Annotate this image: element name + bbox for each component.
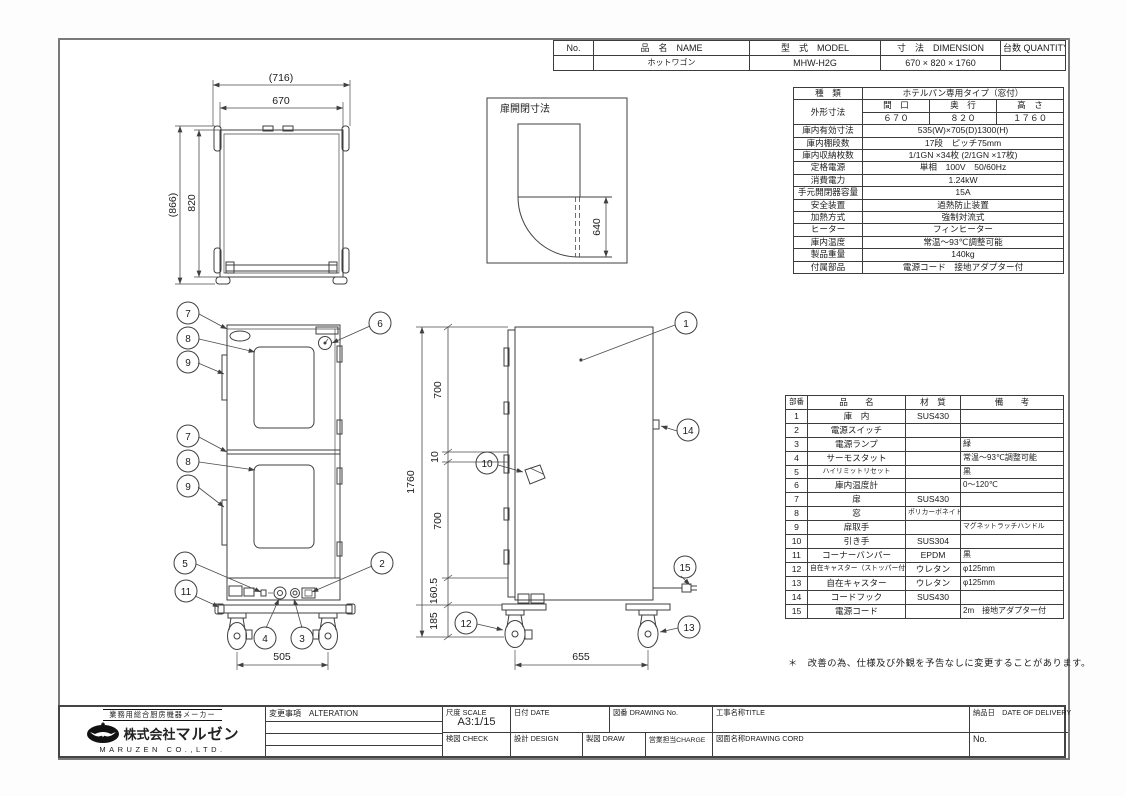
side-view: 1760 700 10 700 160.5 185 655 1 14 10 15… (400, 300, 710, 685)
power-lamp (291, 589, 300, 598)
thermometer-icon (319, 337, 332, 350)
company-name-en: MARUZEN CO.,LTD. (99, 745, 225, 754)
door-window-upper (254, 347, 314, 428)
dim-upper-door: 700 (432, 381, 444, 399)
callout-9: 9 (177, 475, 199, 497)
dim-base-height: 160.5 (428, 578, 440, 604)
table-row: 11コーナーバンパーEPDM黒 (786, 548, 1064, 562)
door-opening-detail: 扉開閉寸法 640 (460, 80, 660, 290)
callout-2: 2 (371, 552, 393, 574)
table-row: 12自在キャスター（ストッパー付）ウレタンφ125mm (786, 562, 1064, 576)
spec-value: ホテルパン専用タイプ（窓付） (863, 88, 1064, 100)
header-col-quantity: 台数 QUANTITY (1001, 41, 1066, 56)
disclaimer-note: ＊ 改善の為、仕様及び外観を予告なしに変更することがあります。 (788, 655, 1091, 669)
surface-point (579, 358, 582, 361)
spec-label: 庫内温度 (794, 236, 863, 248)
caster-icon (505, 610, 532, 648)
caster-icon (638, 610, 658, 648)
callout-4: 4 (254, 627, 276, 649)
svg-text:3: 3 (299, 634, 305, 645)
dim-outer-depth: (866) (167, 193, 179, 218)
spec-label: 安全装置 (794, 199, 863, 211)
spec-value: 1.24kW (863, 174, 1064, 186)
quantity-value (1001, 56, 1066, 71)
table-row: 6庫内温度計0～120℃ (786, 479, 1064, 493)
parts-col-remarks: 備 考 (961, 396, 1064, 410)
header-col-model: 型 式 MODEL (750, 41, 881, 56)
table-row: 2電源スイッチ (786, 423, 1064, 437)
maruzen-logo-icon (85, 722, 121, 744)
date-cell: 日付 DATE (510, 707, 609, 733)
table-row: 10引き手SUS304 (786, 535, 1064, 549)
svg-text:8: 8 (185, 334, 191, 345)
header-col-dimension: 寸 法 DIMENSION (881, 41, 1001, 56)
spec-label: 庫内収納枚数 (794, 150, 863, 162)
spec-sub-val: １７６０ (997, 112, 1064, 124)
spec-label: 定格電源 (794, 162, 863, 174)
front-dimensions: 505 (237, 651, 328, 670)
callout-6: 6 (369, 312, 391, 334)
spec-label: 外形寸法 (794, 100, 863, 125)
callout-7: 7 (177, 425, 199, 447)
base-flange-front (502, 604, 546, 610)
front-view: 505 7 8 9 7 8 9 5 11 6 2 4 3 (165, 300, 410, 680)
door-swing-dimension: 640 (591, 197, 606, 257)
company-name: 株式会社マルゼン (123, 723, 239, 744)
callout-3: 3 (291, 627, 313, 649)
company-block: 業務用総合厨房機器メーカー 株式会社マルゼン MARUZEN CO.,LTD. (60, 707, 265, 756)
pull-handle (525, 465, 545, 484)
project-title-cell: 工事名称TITLE (712, 707, 969, 733)
charge-cell: 営業担当CHARGE (645, 733, 712, 756)
callout-8: 8 (177, 450, 199, 472)
drawing-name-cell: 図面名称DRAWING CORD (712, 733, 969, 756)
svg-text:9: 9 (185, 482, 191, 493)
dim-caster-height: 185 (428, 612, 440, 630)
spec-label: 種 類 (794, 88, 863, 100)
spec-label: 加熱方式 (794, 212, 863, 224)
company-tagline: 業務用総合厨房機器メーカー (103, 709, 221, 721)
side-cabinet (502, 327, 697, 648)
door-window-lower (254, 465, 314, 548)
draw-cell: 製図 DRAW (582, 733, 645, 756)
title-block: 業務用総合厨房機器メーカー 株式会社マルゼン MARUZEN CO.,LTD. … (58, 705, 1066, 758)
spec-sub-col: 奥 行 (930, 100, 997, 112)
callout-7: 7 (177, 302, 199, 324)
dim-depth: 820 (186, 194, 198, 212)
callout-13: 13 (678, 616, 700, 638)
dim-door-open: 640 (591, 218, 603, 236)
callout-9: 9 (177, 351, 199, 373)
spec-value: 140kg (863, 249, 1064, 261)
check-cell: 検図 CHECK (442, 733, 510, 756)
table-row: 8窓ポリカーボネイト (786, 507, 1064, 521)
alteration-cell: 変更事項 ALTERATION (265, 707, 442, 756)
thermostat-knob (274, 587, 286, 599)
callout-14: 14 (677, 419, 699, 441)
spec-table: 種 類 ホテルパン専用タイプ（窓付） 外形寸法 間 口 奥 行 高 さ ６７０ … (793, 87, 1064, 274)
spec-label: ヒーター (794, 224, 863, 236)
power-switch (302, 588, 315, 598)
dim-caster-span-side: 655 (572, 651, 590, 663)
product-name: ホットワゴン (594, 56, 750, 71)
table-row: 13自在キャスターウレタンφ125mm (786, 576, 1064, 590)
svg-text:11: 11 (181, 587, 192, 598)
drawing-number-cell: No. (969, 733, 1068, 756)
front-callouts: 7 8 9 7 8 9 5 11 6 2 4 3 (174, 302, 393, 649)
callout-12: 12 (455, 612, 477, 634)
spec-sub-col: 高 さ (997, 100, 1064, 112)
caster-icon (313, 613, 338, 650)
callout-5: 5 (174, 552, 196, 574)
side-leader-lines (477, 325, 690, 632)
table-row: 15電源コード2m 接地アダプター付 (786, 604, 1064, 618)
header-col-no: No. (554, 41, 594, 56)
svg-text:7: 7 (185, 309, 191, 320)
dim-width: 670 (272, 95, 290, 107)
parts-col-name: 品 名 (808, 396, 906, 410)
delivery-date-cell: 納品日 DATE OF DELIVERY (969, 707, 1068, 733)
base-flange-rear (626, 604, 670, 610)
spec-value: 単相 100V 50/60Hz (863, 162, 1064, 174)
spec-sub-val: ８２０ (930, 112, 997, 124)
header-no-value (554, 56, 594, 71)
side-callouts: 1 14 10 15 12 13 (455, 312, 700, 638)
table-row: 1庫 内SUS430 (786, 409, 1064, 423)
scale-value: A3:1/15 (443, 716, 510, 728)
spec-label: 消費電力 (794, 174, 863, 186)
svg-text:2: 2 (379, 559, 385, 570)
svg-text:8: 8 (185, 457, 191, 468)
table-row: 7扉SUS430 (786, 493, 1064, 507)
table-row: 5ハイリミットリセット黒 (786, 465, 1064, 479)
header-table: No. 品 名 NAME 型 式 MODEL 寸 法 DIMENSION 台数 … (553, 40, 1066, 71)
spec-label: 付属部品 (794, 261, 863, 273)
spec-label: 手元開閉器容量 (794, 187, 863, 199)
spec-label: 製品重量 (794, 249, 863, 261)
table-row: 3電源ランプ緑 (786, 437, 1064, 451)
spec-value: 1/1GN ×34枚 (2/1GN ×17枚) (863, 150, 1064, 162)
control-panel (229, 586, 315, 599)
plan-view: (716) 670 (866) 820 (85, 70, 375, 302)
spec-value: 15A (863, 187, 1064, 199)
power-cord (653, 584, 697, 592)
scale-cell: 尺度 SCALE A3:1/15 (442, 707, 510, 733)
design-cell: 設計 DESIGN (510, 733, 582, 756)
cord-hook (653, 420, 659, 429)
svg-text:13: 13 (683, 623, 695, 634)
parts-col-material: 材 質 (906, 396, 961, 410)
door-swing-drawing (518, 124, 612, 257)
svg-text:7: 7 (185, 432, 191, 443)
spec-value: 電源コード 接地アダプター付 (863, 261, 1064, 273)
dim-lower-door: 700 (432, 512, 444, 530)
callout-15: 15 (674, 556, 696, 578)
detail-title: 扉開閉寸法 (500, 102, 550, 115)
dimension-value: 670 × 820 × 1760 (881, 56, 1001, 71)
spec-label: 庫内有効寸法 (794, 125, 863, 137)
model-value: MHW-H2G (750, 56, 881, 71)
table-row: 14コードフックSUS430 (786, 590, 1064, 604)
brand-plate-icon (230, 331, 250, 341)
dim-caster-span-front: 505 (273, 651, 291, 663)
callout-10: 10 (476, 452, 498, 474)
spec-value: 535(W)×705(D)1300(H) (863, 125, 1064, 137)
drawing-no-cell: 図番 DRAWING No. (609, 707, 712, 733)
high-limit-reset (261, 590, 266, 596)
front-cabinet (215, 325, 355, 650)
svg-text:9: 9 (185, 358, 191, 369)
door-handle-strip-upper (222, 355, 227, 400)
svg-text:5: 5 (182, 559, 188, 570)
side-dimensions: 1760 700 10 700 160.5 185 655 (405, 324, 648, 670)
spec-value: 強制対流式 (863, 212, 1064, 224)
table-row: 9扉取手マグネットラッチハンドル (786, 521, 1064, 535)
dim-door-gap: 10 (429, 451, 441, 463)
parts-table: 部番 品 名 材 質 備 考 1庫 内SUS430 2電源スイッチ 3電源ランプ… (785, 395, 1064, 619)
svg-text:15: 15 (679, 563, 691, 574)
spec-value: 17段 ピッチ75mm (863, 137, 1064, 149)
base-frame (218, 605, 352, 613)
plan-dimensions: (716) 670 (866) 820 (167, 72, 350, 284)
door-handle-strip-lower (222, 500, 227, 545)
svg-text:4: 4 (262, 634, 268, 645)
dim-total-height: 1760 (405, 470, 417, 494)
callout-11: 11 (175, 580, 197, 602)
parts-col-no: 部番 (786, 396, 808, 410)
svg-text:6: 6 (377, 319, 383, 330)
spec-sub-val: ６７０ (863, 112, 930, 124)
callout-1: 1 (675, 312, 697, 334)
spec-value: フィンヒーター (863, 224, 1064, 236)
dim-outer-width: (716) (269, 72, 294, 84)
svg-text:1: 1 (683, 319, 689, 330)
spec-label: 庫内棚段数 (794, 137, 863, 149)
caster-stopper (525, 630, 532, 639)
spec-value: 常温～93℃調整可能 (863, 236, 1064, 248)
plan-cabinet-outline (214, 126, 349, 284)
spec-value: 過熱防止装置 (863, 199, 1064, 211)
svg-text:10: 10 (481, 459, 493, 470)
spec-sub-col: 間 口 (863, 100, 930, 112)
table-row: 4サーモスタット常温～93℃調整可能 (786, 451, 1064, 465)
caster-icon (228, 613, 253, 650)
callout-8: 8 (177, 327, 199, 349)
svg-text:14: 14 (682, 426, 694, 437)
svg-text:12: 12 (460, 619, 472, 630)
header-col-name: 品 名 NAME (594, 41, 750, 56)
